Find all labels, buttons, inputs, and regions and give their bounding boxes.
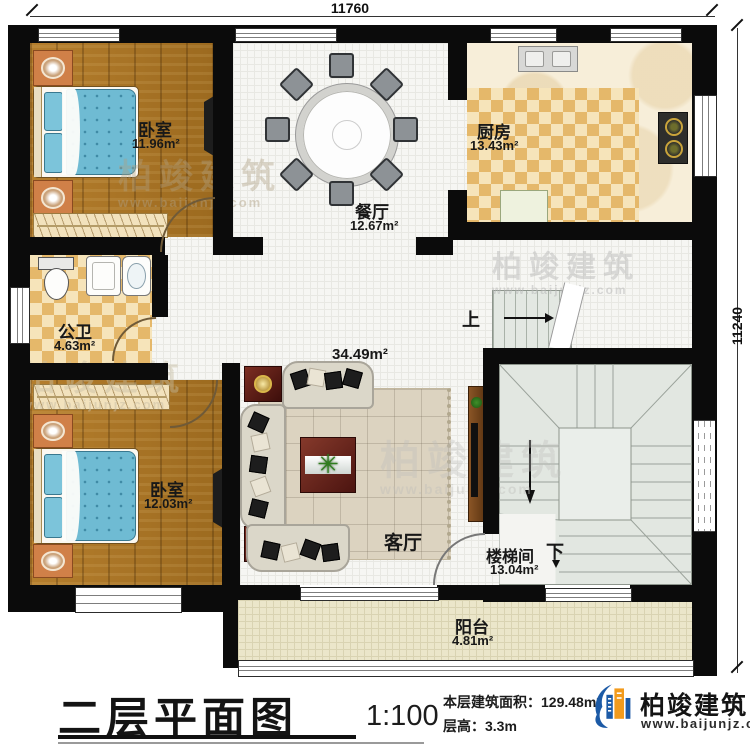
wall <box>213 25 233 255</box>
title-underline <box>58 735 356 739</box>
bed <box>33 448 139 544</box>
plant-icon: ✳ <box>317 451 339 477</box>
floor-height-info: 层高：3.3m <box>443 716 517 736</box>
window-dashed <box>694 420 715 532</box>
kitchen-tile-area <box>467 88 639 222</box>
room-label-living: 客厅 <box>384 528 422 555</box>
sofa-pillow <box>248 498 269 519</box>
bed-pillow <box>44 497 63 538</box>
wardrobe <box>33 213 168 238</box>
bathroom-sink <box>122 256 151 296</box>
room-area-bathroom: 4.63m² <box>54 338 95 353</box>
watermark-text: 柏竣建筑 <box>118 158 282 196</box>
window <box>610 28 682 42</box>
wall <box>30 237 165 255</box>
stair-up-arrow <box>504 317 546 319</box>
watermark-url: www.baijunjz.com <box>22 398 186 412</box>
floor-area-info: 本层建筑面积：129.48m² <box>443 692 601 712</box>
bed-sheet <box>62 451 80 541</box>
sofa-chaise <box>246 524 350 572</box>
sofa-pillow <box>247 411 269 433</box>
wall <box>483 348 499 534</box>
floorplan-canvas: 11760 11240 柏竣建筑 www.baijunjz.com 柏竣建筑 w… <box>0 0 750 749</box>
nightstand <box>33 50 73 86</box>
window <box>75 587 182 613</box>
window <box>38 28 120 42</box>
window <box>545 588 632 602</box>
sofa <box>240 404 286 530</box>
room-area-kitchen: 13.43m² <box>470 138 518 153</box>
floor-height-value: 3.3m <box>485 718 517 734</box>
dimension-top-label: 11760 <box>290 0 410 16</box>
floor-area-label: 本层建筑面积： <box>443 694 541 710</box>
room-area-bedroom1: 11.96m² <box>132 136 180 151</box>
bed-headboard <box>34 449 42 543</box>
window <box>490 28 557 42</box>
wall <box>483 348 717 364</box>
plant-icon <box>471 397 482 408</box>
sofa <box>282 361 374 409</box>
kitchen-cabinet <box>500 190 548 224</box>
wall <box>222 363 240 585</box>
balcony-railing <box>238 660 694 677</box>
nightstand <box>33 180 73 216</box>
stair-up-label: 上 <box>462 306 480 332</box>
sofa-pillow <box>307 368 327 388</box>
room-area-balcony: 4.81m² <box>452 633 493 648</box>
sofa-pillow <box>249 455 268 474</box>
nightstand <box>33 414 73 448</box>
sofa-pillow <box>260 540 280 560</box>
floor-height-label: 层高： <box>443 718 485 734</box>
bed-headboard <box>34 87 42 177</box>
tv-icon <box>471 423 478 497</box>
dimension-top-line <box>30 16 715 17</box>
wall <box>223 598 238 668</box>
dining-chair <box>265 117 290 142</box>
window <box>235 28 337 42</box>
dining-chair <box>329 53 354 78</box>
watermark-text: 柏竣建筑 <box>492 251 640 284</box>
window <box>10 287 30 344</box>
scale-label: 1:100 <box>366 700 439 733</box>
sofa-pillow <box>300 539 322 561</box>
room-area-bedroom2: 12.03m² <box>144 496 192 511</box>
sofa-pillow <box>250 432 270 452</box>
stove <box>658 112 688 164</box>
dimension-right-label: 11240 <box>729 296 745 356</box>
wall <box>448 222 692 240</box>
wall <box>448 25 467 100</box>
bed-pillow <box>44 454 63 495</box>
wall <box>152 255 168 317</box>
title-underline-thin <box>58 742 424 744</box>
dimension-tick <box>706 4 719 17</box>
sliding-door <box>300 587 439 601</box>
wall <box>483 585 545 602</box>
dining-chair <box>393 117 418 142</box>
sofa-pillow <box>321 543 340 562</box>
sofa-pillow <box>324 371 343 390</box>
sofa-pillow <box>342 368 363 389</box>
brand-url: www.baijunjz.com <box>641 716 750 731</box>
wall <box>437 585 483 600</box>
window <box>694 95 717 177</box>
bed-pillow <box>44 133 63 173</box>
sofa-pillow <box>280 542 301 563</box>
bed-pillow <box>44 92 63 132</box>
sofa-pillow <box>250 476 272 498</box>
bed-sheet <box>62 89 80 175</box>
stair-down-arrow <box>552 560 560 568</box>
kitchen-sink <box>518 46 578 72</box>
room-area-dining: 12.67m² <box>350 218 398 233</box>
room-area-stairwell: 13.04m² <box>490 562 538 577</box>
dimension-tick <box>26 4 39 17</box>
nightstand <box>33 544 73 578</box>
wall <box>233 237 263 255</box>
brand-logo-icon <box>588 682 636 730</box>
coffee-table: ✳ <box>300 437 356 493</box>
room-area-living: 34.49m² <box>332 346 388 363</box>
corner-table <box>244 366 282 402</box>
dining-chair <box>329 181 354 206</box>
washing-machine <box>86 256 121 296</box>
wall <box>448 190 467 222</box>
stair-up-arrowhead <box>545 313 554 323</box>
wall <box>630 585 692 602</box>
wall <box>8 363 168 380</box>
